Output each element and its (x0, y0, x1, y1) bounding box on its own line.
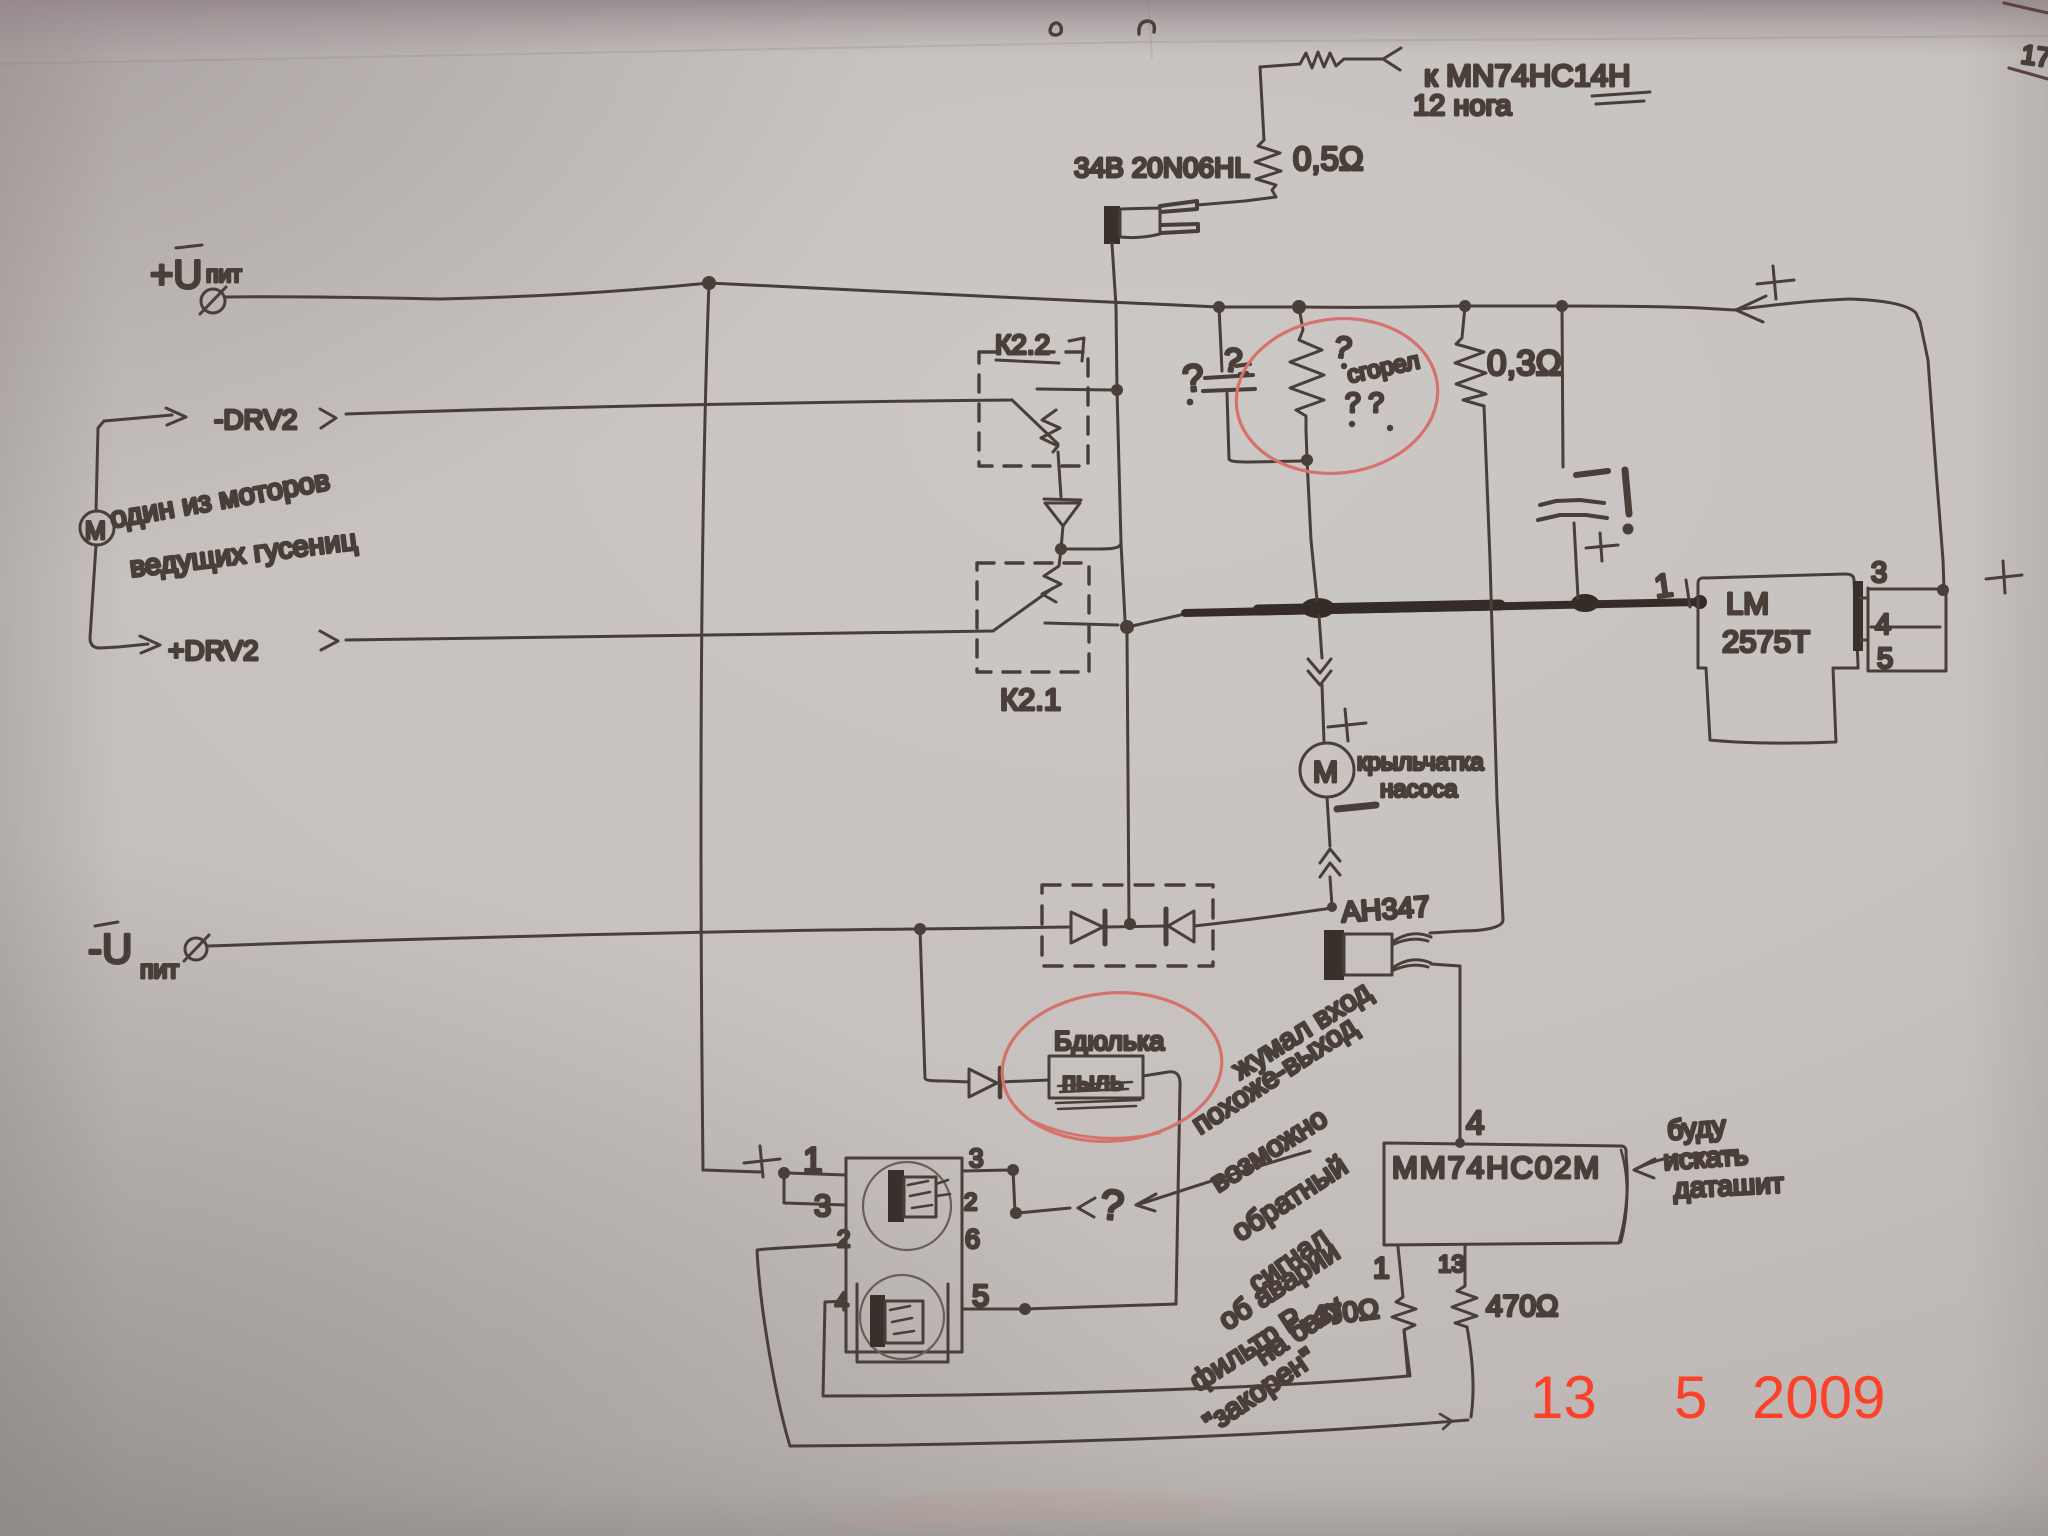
svg-text:1: 1 (1373, 1252, 1390, 1285)
svg-text:LM: LM (1726, 586, 1769, 621)
svg-text:3: 3 (814, 1188, 831, 1223)
svg-text:2: 2 (964, 1189, 977, 1216)
svg-text:К2.1: К2.1 (1000, 682, 1061, 717)
svg-text:? ?: ? ? (1345, 387, 1384, 418)
svg-text:6: 6 (965, 1224, 980, 1254)
svg-text:12 нога: 12 нога (1413, 90, 1512, 122)
svg-text:4: 4 (1875, 609, 1891, 641)
svg-text:5: 5 (972, 1278, 989, 1313)
svg-text:АН347: АН347 (1340, 891, 1431, 929)
svg-text:4: 4 (1466, 1104, 1484, 1141)
svg-text:2: 2 (837, 1226, 850, 1253)
svg-text:крыльчатка: крыльчатка (1357, 749, 1484, 776)
svg-text:-U: -U (88, 925, 132, 972)
svg-text:к MN74HC14H: к MN74HC14H (1424, 58, 1631, 93)
svg-text:?: ? (1098, 1180, 1126, 1229)
svg-text:3: 3 (1871, 557, 1887, 589)
svg-text:5: 5 (1877, 643, 1893, 675)
svg-text:К2.2: К2.2 (995, 329, 1050, 360)
svg-text:1: 1 (1652, 566, 1675, 605)
svg-text:даташит: даташит (1673, 1167, 1785, 1204)
svg-text:470Ω: 470Ω (1486, 1290, 1558, 1323)
svg-text:М: М (1313, 756, 1338, 789)
svg-text:17: 17 (2019, 39, 2048, 73)
svg-text:13: 13 (1530, 1364, 1597, 1431)
svg-text:+U: +U (150, 253, 202, 297)
svg-text:пит: пит (140, 956, 180, 984)
svg-text:один из моторов: один из моторов (108, 465, 333, 535)
svg-text:насоса: насоса (1380, 776, 1458, 803)
svg-text:М: М (85, 517, 106, 545)
svg-text:5: 5 (1674, 1364, 1707, 1431)
svg-text:ведущих гусениц: ведущих гусениц (128, 524, 359, 584)
svg-text:+DRV2: +DRV2 (168, 635, 259, 666)
svg-text:0,5Ω: 0,5Ω (1293, 140, 1364, 177)
svg-text:2575T: 2575T (1722, 624, 1810, 659)
svg-text:34В 20N06HL: 34В 20N06HL (1074, 152, 1250, 183)
svg-text:-DRV2: -DRV2 (214, 404, 298, 435)
svg-text:13: 13 (1438, 1251, 1465, 1278)
svg-text:Бдюлька: Бдюлька (1054, 1026, 1165, 1056)
svg-text:сгорел: сгорел (1345, 347, 1422, 389)
svg-text:2009: 2009 (1752, 1364, 1885, 1431)
svg-text:пит: пит (206, 261, 242, 287)
svg-text:0,3Ω: 0,3Ω (1487, 344, 1562, 383)
svg-text:ММ74НС02М: ММ74НС02М (1392, 1150, 1601, 1185)
svg-text:3: 3 (969, 1143, 983, 1173)
svg-text:?: ? (1181, 357, 1206, 401)
